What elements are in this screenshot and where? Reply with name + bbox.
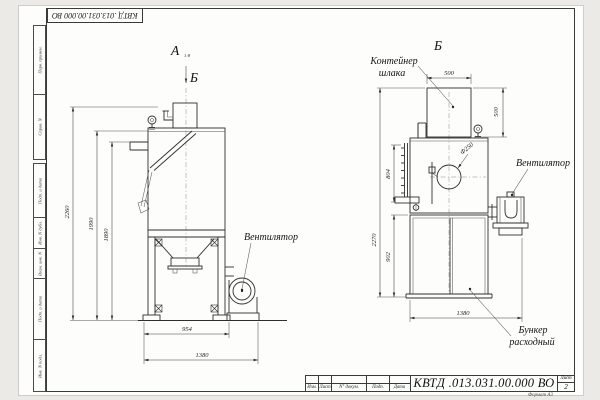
- l-pipe: [164, 111, 173, 120]
- view-a: А 1:8 Б: [64, 43, 298, 364]
- hopper-a: [156, 239, 214, 273]
- view-a-scale: 1:8: [184, 53, 191, 58]
- dim-f250: Ф250: [459, 141, 476, 156]
- view-a-label: А: [170, 43, 180, 58]
- ladder-platform: [395, 197, 419, 203]
- dim-1890: 1890: [103, 228, 110, 242]
- dim-500w: 500: [444, 70, 455, 77]
- fan-a: [225, 267, 259, 321]
- machine-a-outline: [130, 103, 225, 230]
- dim-1380-b: 1380: [457, 310, 471, 317]
- corner-gussets: [155, 239, 218, 312]
- view-b-label: Б: [433, 38, 442, 53]
- fan-base: [227, 313, 259, 321]
- dim-2270: 2270: [371, 233, 378, 247]
- body-a: [148, 128, 225, 230]
- drawing-page: { "sheet": { "designation": "КВТД .013.0…: [0, 0, 600, 400]
- foot-left: [143, 315, 160, 321]
- view-a-dimensions: 2260 1990 1890 954 1380: [64, 107, 258, 364]
- lever-b: [429, 162, 438, 204]
- valve-a: [148, 116, 156, 130]
- valve-b: [474, 125, 482, 137]
- container-label-2: шлака: [379, 68, 405, 79]
- section-arrow-b-label: Б: [189, 70, 198, 85]
- machine-b-outline: [395, 123, 488, 213]
- fan-label-a: Вентилятор: [244, 232, 298, 243]
- dim-1990: 1990: [88, 217, 95, 231]
- bunker-label-1: Бункер: [517, 325, 547, 336]
- fan-leader-b: [512, 169, 528, 194]
- dim-954: 954: [182, 326, 193, 333]
- drawing-canvas: А 1:8 Б: [0, 0, 600, 400]
- fan-label-b: Вентилятор: [516, 158, 570, 169]
- dim-1380-a: 1380: [196, 352, 210, 359]
- fan-b: [488, 192, 528, 235]
- chimney-a: [173, 103, 197, 128]
- hood-diagonal: [150, 131, 192, 168]
- dim-804: 804: [385, 168, 392, 179]
- container-label-1: Контейнер: [369, 56, 417, 67]
- ladder-b: [395, 143, 419, 211]
- view-b-dimensions: 500 500 Ф250 804 2270 902: [371, 70, 522, 322]
- dim-902: 902: [385, 251, 392, 262]
- fan-leader-a: [242, 243, 251, 289]
- bunker-label-2: расходный: [508, 337, 554, 348]
- bunker-leader: [470, 290, 511, 336]
- counterweight: [138, 200, 149, 213]
- dim-500h: 500: [493, 106, 500, 117]
- dim-2260: 2260: [64, 205, 71, 219]
- stand-frame-a: [138, 230, 287, 321]
- view-b: Б Контейнер шлака: [369, 38, 570, 348]
